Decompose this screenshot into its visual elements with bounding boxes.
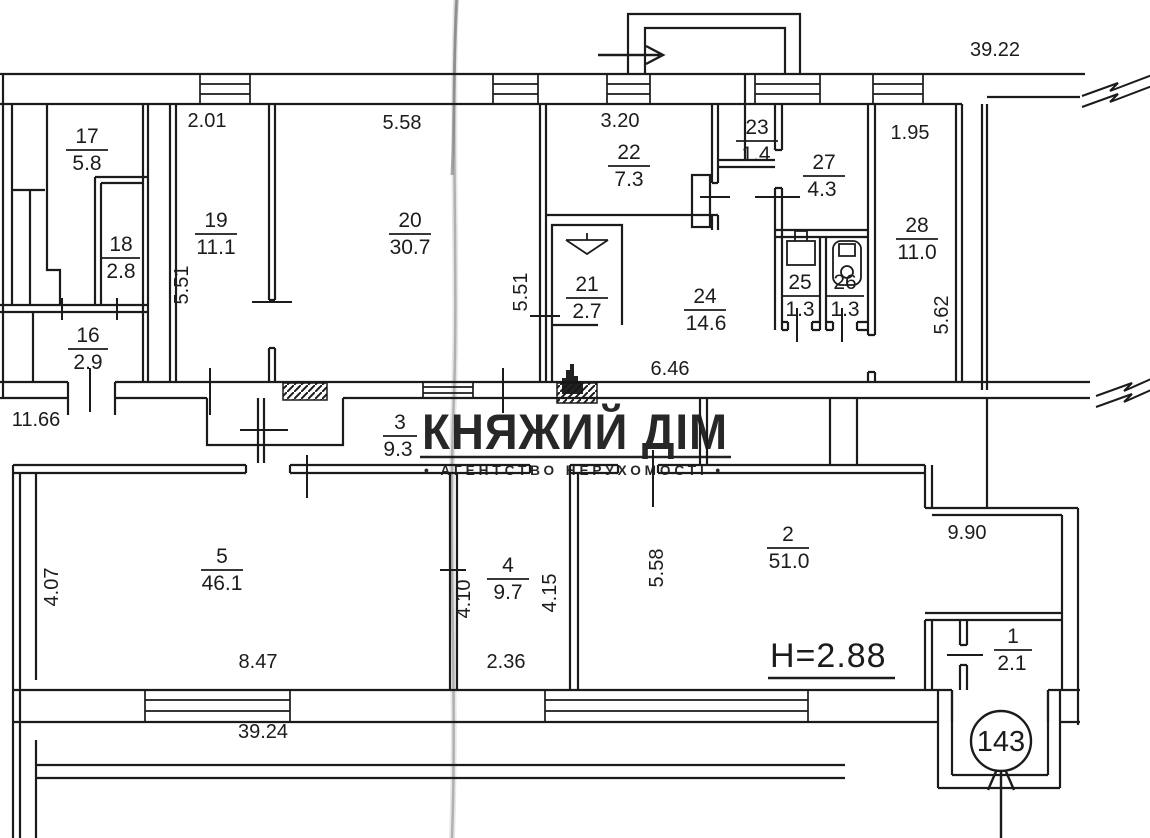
room-27-number: 27 bbox=[812, 151, 835, 174]
dim-top-19: 2.01 bbox=[188, 110, 227, 132]
fixtures bbox=[566, 231, 861, 285]
room-23-number: 23 bbox=[745, 116, 768, 139]
ceiling-height-text: Н=2.88 bbox=[770, 637, 887, 675]
floor-plan-drawing: 17 5.8 18 2.8 16 2.9 19 11.1 20 30.7 22 … bbox=[0, 0, 1150, 838]
room-18-area: 2.8 bbox=[106, 260, 135, 283]
entrance-number-text: 143 bbox=[977, 726, 1025, 758]
room-22-area: 7.3 bbox=[614, 168, 643, 191]
room-3-area: 9.3 bbox=[383, 438, 412, 461]
room-21-area: 2.7 bbox=[572, 300, 601, 323]
room-1-area: 2.1 bbox=[997, 652, 1026, 675]
agency-name: КНЯЖИЙ ДІМ bbox=[422, 403, 728, 460]
floor-plan-scan: 17 5.8 18 2.8 16 2.9 19 11.1 20 30.7 22 … bbox=[0, 0, 1150, 838]
break-marks bbox=[1082, 75, 1150, 407]
dim-bottom-overall: 39.24 bbox=[238, 721, 288, 743]
room-20-area: 30.7 bbox=[390, 236, 431, 259]
room-28-area: 11.0 bbox=[897, 241, 936, 264]
dim-left-19: 5.51 bbox=[171, 266, 193, 305]
room-3-number: 3 bbox=[394, 411, 406, 434]
dim-top-overall: 39.22 bbox=[970, 39, 1020, 61]
dim-corridor-24: 6.46 bbox=[651, 358, 690, 380]
room-23-area: 1.4 bbox=[741, 143, 771, 166]
room-21-number: 21 bbox=[575, 273, 598, 296]
room-22-number: 22 bbox=[617, 141, 640, 164]
room-17-number: 17 bbox=[75, 125, 98, 148]
room-4-area: 9.7 bbox=[493, 581, 522, 604]
dim-right-28: 5.62 bbox=[931, 296, 953, 335]
dim-bottom-4: 2.36 bbox=[487, 651, 526, 673]
room-26-number: 26 bbox=[833, 271, 856, 294]
room-16-area: 2.9 bbox=[73, 351, 102, 374]
entrance-arrow-top bbox=[598, 46, 663, 64]
dim-corridor-left: 11.66 bbox=[12, 409, 61, 431]
room-4-number: 4 bbox=[502, 554, 514, 577]
dim-left-5: 4.07 bbox=[41, 568, 63, 607]
dim-bottom-5: 8.47 bbox=[239, 651, 278, 673]
room-16-number: 16 bbox=[76, 324, 99, 347]
agency-tagline: • АГЕНТСТВО НЕРУХОМОСТІ • bbox=[424, 462, 724, 478]
room-28-number: 28 bbox=[905, 214, 928, 237]
dim-left-21: 5.51 bbox=[510, 273, 532, 312]
room-24-number: 24 bbox=[693, 285, 717, 308]
room-18-number: 18 bbox=[109, 233, 132, 256]
room-20-number: 20 bbox=[398, 209, 421, 232]
sink-icon-room21 bbox=[566, 233, 608, 254]
dim-top-20: 5.58 bbox=[383, 112, 422, 134]
room-27-area: 4.3 bbox=[807, 178, 836, 201]
ceiling-height-note: Н=2.88 bbox=[768, 637, 895, 678]
dim-left-2: 5.58 bbox=[646, 549, 668, 588]
room-19-area: 11.1 bbox=[196, 236, 235, 259]
room-26-area: 1.3 bbox=[830, 298, 859, 321]
dim-right-4: 4.15 bbox=[539, 574, 561, 613]
dim-right-2: 9.90 bbox=[948, 522, 987, 544]
room-2-number: 2 bbox=[782, 523, 794, 546]
room-17-area: 5.8 bbox=[72, 152, 101, 175]
room-1-number: 1 bbox=[1007, 625, 1019, 648]
dim-top-22: 3.20 bbox=[601, 110, 640, 132]
room-25-area: 1.3 bbox=[785, 298, 814, 321]
room-24-area: 14.6 bbox=[686, 312, 727, 335]
dim-left-4: 4.10 bbox=[453, 580, 475, 619]
agency-logo-icon bbox=[562, 364, 583, 394]
room-5-area: 46.1 bbox=[202, 572, 243, 595]
room-2-area: 51.0 bbox=[769, 550, 810, 573]
room-5-number: 5 bbox=[216, 545, 228, 568]
room-25-number: 25 bbox=[788, 271, 811, 294]
dim-top-28: 1.95 bbox=[891, 122, 930, 144]
room-19-number: 19 bbox=[204, 209, 227, 232]
